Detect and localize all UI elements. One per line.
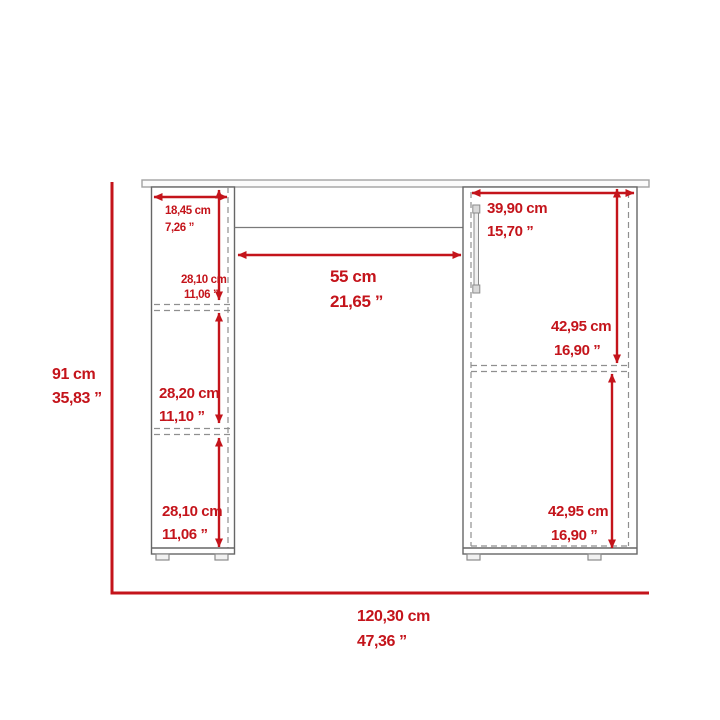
label-shelf-depth-in: 7,26 ” [165,222,194,234]
label-overall-width-cm: 120,30 cm [357,608,430,625]
label-cabinet-upper-cm: 42,95 cm [551,318,611,335]
label-shelf-bottom-cm: 28,10 cm [162,503,222,520]
label-shelf-middle-cm: 28,20 cm [159,385,219,402]
door-handle-cap-bottom [473,285,480,293]
label-shelf-depth-cm: 18,45 cm [165,205,211,217]
left-foot-left [156,554,169,560]
label-cabinet-width-cm: 39,90 cm [487,200,547,217]
desk-top-slab [142,180,649,187]
right-foot-left [467,554,480,560]
label-shelf-middle-in: 11,10 ” [159,408,205,425]
label-overall-height-cm: 91 cm [52,366,96,383]
door-handle-cap-top [473,205,480,213]
label-shelf-bottom-in: 11,06 ” [162,526,208,543]
label-overall-height-in: 35,83 ” [52,390,102,407]
right-foot-right [588,554,601,560]
label-knee-space-in: 21,65 ” [330,292,383,311]
label-cabinet-lower-cm: 42,95 cm [548,503,608,520]
label-shelf-top-cm: 28,10 cm [181,274,227,286]
label-cabinet-upper-in: 16,90 ” [554,342,600,359]
label-knee-space-cm: 55 cm [330,267,376,286]
label-cabinet-lower-in: 16,90 ” [551,527,597,544]
label-shelf-top-in: 11,06 ” [184,289,218,301]
door-handle [474,205,479,293]
left-panel [152,187,235,554]
label-overall-width-in: 47,36 ” [357,633,407,650]
desk-dimension-diagram: 18,45 cm 7,26 ” 28,10 cm 11,06 ” 55 cm 2… [0,0,720,720]
left-foot-right [215,554,228,560]
diagram-canvas: 18,45 cm 7,26 ” 28,10 cm 11,06 ” 55 cm 2… [0,0,720,720]
label-cabinet-width-in: 15,70 ” [487,223,533,240]
